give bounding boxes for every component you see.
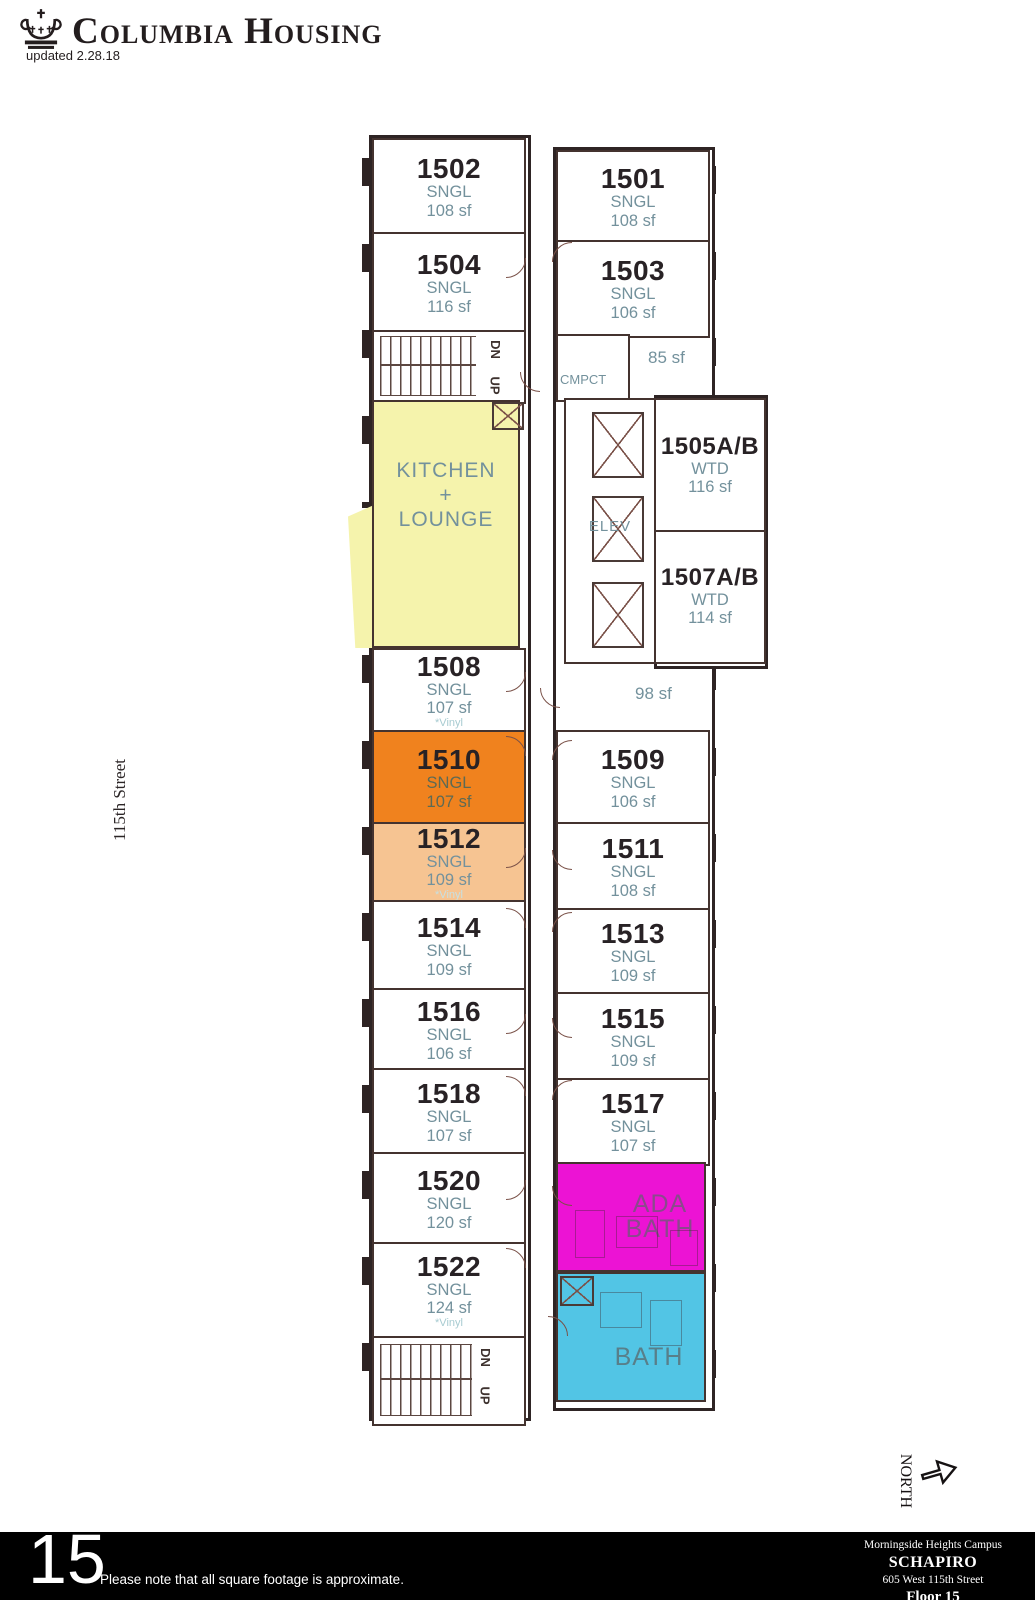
room-type: WTD <box>691 591 729 609</box>
floor-label: Floor 15 <box>828 1588 1035 1600</box>
room-1515: 1515 SNGL 109 sf <box>556 992 710 1082</box>
stairs-up-label: UP <box>488 376 503 394</box>
room-number: 1515 <box>601 1004 665 1033</box>
room-number: 1517 <box>601 1089 665 1118</box>
footage-note: Please note that all square footage is a… <box>100 1572 404 1587</box>
room-number: 1512 <box>417 824 481 853</box>
room-type: SNGL <box>427 853 472 871</box>
room-1520: 1520 SNGL 120 sf <box>372 1152 526 1246</box>
kitchen-bumpout <box>348 505 374 648</box>
building-address: 605 West 115th Street <box>828 1573 1035 1588</box>
stairs-bottom-treads <box>380 1344 472 1416</box>
bath-fixture <box>670 1230 698 1266</box>
room-1503: 1503 SNGL 106 sf <box>556 240 710 338</box>
room-area: 108 sf <box>427 202 472 220</box>
room-1508: 1508 SNGL 107 sf *Vinyl <box>372 648 526 734</box>
bath-fixture <box>616 1216 658 1248</box>
room-area: 106 sf <box>611 304 656 322</box>
room-area: 109 sf <box>611 1052 656 1070</box>
stairs-top-landing <box>380 364 476 366</box>
room-1513: 1513 SNGL 109 sf <box>556 908 710 996</box>
room-type: SNGL <box>611 948 656 966</box>
room-number: 1504 <box>417 250 481 279</box>
building-info-block: Morningside Heights Campus SCHAPIRO 605 … <box>828 1538 1035 1600</box>
north-arrow-icon <box>918 1442 962 1495</box>
room-type: WTD <box>691 460 729 478</box>
room-area: 124 sf <box>427 1299 472 1317</box>
room-1504: 1504 SNGL 116 sf <box>372 232 526 334</box>
room-type: SNGL <box>611 1118 656 1136</box>
area-85sf-label: 85 sf <box>648 348 685 368</box>
room-1517: 1517 SNGL 107 sf <box>556 1078 710 1166</box>
area-98sf-label: 98 sf <box>635 684 672 704</box>
stairs-dn-label: DN <box>478 1348 493 1367</box>
room-1509: 1509 SNGL 106 sf <box>556 730 710 826</box>
room-type: SNGL <box>427 681 472 699</box>
floor-number: 15 <box>28 1524 106 1594</box>
room-area: 107 sf <box>427 699 472 717</box>
bath-fixture <box>650 1300 682 1346</box>
north-label: NORTH <box>896 1436 914 1526</box>
room-number: 1520 <box>417 1166 481 1195</box>
room-number: 1507A/B <box>661 566 759 591</box>
room-1507ab: 1507A/B WTD 114 sf <box>654 530 766 664</box>
room-area: 109 sf <box>427 871 472 889</box>
room-area: 106 sf <box>611 793 656 811</box>
room-area: 108 sf <box>611 212 656 230</box>
room-1516: 1516 SNGL 106 sf <box>372 988 526 1072</box>
stairs-dn-label: DN <box>488 340 503 359</box>
room-1511: 1511 SNGL 108 sf <box>556 822 710 912</box>
room-type: SNGL <box>427 279 472 297</box>
room-1522: 1522 SNGL 124 sf *Vinyl <box>372 1242 526 1340</box>
room-number: 1511 <box>602 834 665 863</box>
room-type: SNGL <box>427 183 472 201</box>
stairs-bottom-landing <box>380 1378 472 1380</box>
room-area: 120 sf <box>427 1214 472 1232</box>
room-area: 107 sf <box>427 793 472 811</box>
bath-label: BATH <box>615 1343 684 1372</box>
room-type: SNGL <box>611 285 656 303</box>
room-area: 107 sf <box>427 1127 472 1145</box>
room-area: 116 sf <box>688 478 732 496</box>
elevator-car-1 <box>592 412 644 478</box>
building-name: SCHAPIRO <box>828 1553 1035 1573</box>
room-1518: 1518 SNGL 107 sf <box>372 1068 526 1156</box>
updated-date: updated 2.28.18 <box>26 48 120 63</box>
room-number: 1503 <box>601 256 665 285</box>
floor-plan-page: Columbia Housing updated 2.28.18 115th S… <box>0 0 1035 1600</box>
room-type: SNGL <box>427 942 472 960</box>
room-number: 1513 <box>601 919 665 948</box>
room-type: SNGL <box>427 1281 472 1299</box>
room-area: 108 sf <box>611 882 656 900</box>
room-1510: 1510 SNGL 107 sf <box>372 730 526 826</box>
room-area: 114 sf <box>688 609 732 627</box>
room-note: *Vinyl <box>435 1317 463 1330</box>
ada-bath-label-line1: ADA <box>633 1192 687 1218</box>
footer-bar: 15 Please note that all square footage i… <box>0 1532 1035 1600</box>
room-1512: 1512 SNGL 109 sf *Vinyl <box>372 822 526 904</box>
room-type: SNGL <box>427 1195 472 1213</box>
room-type: SNGL <box>611 863 656 881</box>
room-1501: 1501 SNGL 108 sf <box>556 150 710 244</box>
room-area: 116 sf <box>427 298 471 316</box>
stairs-top-treads <box>380 336 476 396</box>
room-number: 1510 <box>417 745 481 774</box>
room-type: SNGL <box>611 193 656 211</box>
room-area: 109 sf <box>611 967 656 985</box>
bath-fixture <box>600 1292 642 1328</box>
room-number: 1502 <box>417 154 481 183</box>
room-type: SNGL <box>611 774 656 792</box>
room-number: 1505A/B <box>661 435 759 460</box>
stairs-up-label: UP <box>478 1386 493 1404</box>
room-area: 109 sf <box>427 961 472 979</box>
kitchen-lounge: KITCHEN + LOUNGE <box>372 400 520 648</box>
elevator-label: ELEV <box>564 518 656 535</box>
bath-fixture <box>575 1210 605 1258</box>
elevator-car-3 <box>592 582 644 648</box>
shaft-hatch-box <box>560 1276 594 1306</box>
room-number: 1516 <box>417 997 481 1026</box>
street-label: 115th Street <box>110 720 130 880</box>
kitchen-label-line1: KITCHEN <box>396 459 495 484</box>
room-1514: 1514 SNGL 109 sf <box>372 900 526 992</box>
compactor-room <box>556 334 630 402</box>
room-type: SNGL <box>611 1033 656 1051</box>
room-area: 107 sf <box>611 1137 656 1155</box>
room-number: 1508 <box>417 652 481 681</box>
page-title: Columbia Housing <box>72 10 382 53</box>
room-type: SNGL <box>427 1026 472 1044</box>
room-number: 1514 <box>417 913 481 942</box>
kitchen-label-line3: LOUNGE <box>399 508 494 533</box>
compactor-label: CMPCT <box>560 372 606 387</box>
room-number: 1518 <box>417 1079 481 1108</box>
room-number: 1501 <box>601 164 665 193</box>
campus-name: Morningside Heights Campus <box>828 1538 1035 1553</box>
shaft-hatch-box <box>492 402 524 430</box>
room-1502: 1502 SNGL 108 sf <box>372 138 526 236</box>
room-type: SNGL <box>427 774 472 792</box>
room-note: *Vinyl <box>435 717 463 730</box>
room-number: 1522 <box>417 1252 481 1281</box>
room-area: 106 sf <box>427 1045 472 1063</box>
room-1505ab: 1505A/B WTD 116 sf <box>654 398 766 534</box>
room-number: 1509 <box>601 745 665 774</box>
room-type: SNGL <box>427 1108 472 1126</box>
kitchen-label-line2: + <box>439 484 452 509</box>
